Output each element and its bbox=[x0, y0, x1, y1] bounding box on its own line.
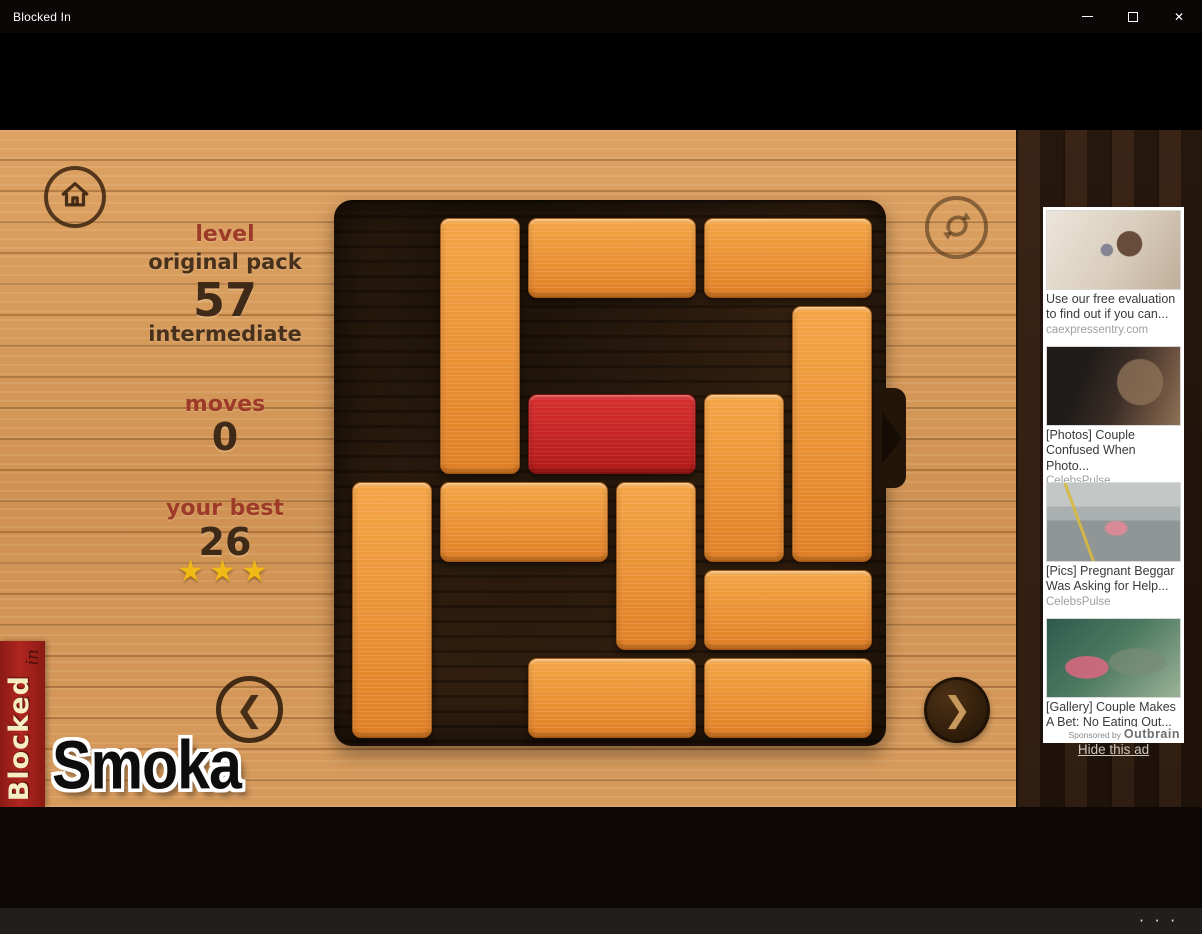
blocked-in-banner: Blocked in bbox=[0, 641, 45, 807]
ad-image bbox=[1046, 346, 1181, 426]
sponsored-label: Sponsored by bbox=[1068, 730, 1120, 740]
banner-subtitle: in bbox=[23, 649, 43, 665]
ad-image bbox=[1046, 618, 1181, 698]
ad-title[interactable]: [Pics] Pregnant Beggar Was Asking for He… bbox=[1046, 564, 1181, 595]
chevron-left-icon: ❮ bbox=[235, 690, 264, 730]
ad-card[interactable]: [Pics] Pregnant Beggar Was Asking for He… bbox=[1043, 482, 1184, 615]
orange-block[interactable] bbox=[792, 306, 872, 562]
bottom-app-bar: · · · bbox=[0, 908, 1202, 934]
orange-block[interactable] bbox=[616, 482, 696, 650]
orange-block[interactable] bbox=[704, 570, 872, 650]
sponsored-by-row[interactable]: Sponsored by Outbrain bbox=[1043, 727, 1184, 743]
app-window: Blocked In ✕ bbox=[0, 0, 1202, 934]
orange-block[interactable] bbox=[704, 218, 872, 298]
close-icon: ✕ bbox=[1174, 10, 1184, 24]
window-title: Blocked In bbox=[0, 10, 71, 24]
orange-block[interactable] bbox=[440, 218, 520, 474]
maximize-button[interactable] bbox=[1110, 0, 1156, 33]
difficulty-label: intermediate bbox=[110, 322, 340, 346]
best-label: your best bbox=[110, 496, 340, 521]
ad-title[interactable]: [Photos] Couple Confused When Photo... bbox=[1046, 428, 1181, 474]
ad-source: CelebsPulse bbox=[1046, 596, 1181, 608]
close-button[interactable]: ✕ bbox=[1156, 0, 1202, 33]
pack-name: original pack bbox=[110, 250, 340, 274]
smoka-watermark: Smoka bbox=[52, 726, 241, 805]
exit-arrow-icon bbox=[882, 412, 902, 464]
moves-label: moves bbox=[110, 392, 340, 417]
ad-title[interactable]: [Gallery] Couple Makes A Bet: No Eating … bbox=[1046, 700, 1181, 731]
ad-card[interactable]: Use our free evaluation to find out if y… bbox=[1043, 210, 1184, 343]
ad-image bbox=[1046, 210, 1181, 290]
orange-block[interactable] bbox=[528, 658, 696, 738]
red-block[interactable] bbox=[528, 394, 696, 474]
restart-icon bbox=[938, 207, 976, 249]
title-bar: Blocked In ✕ bbox=[0, 0, 1202, 33]
orange-block[interactable] bbox=[440, 482, 608, 562]
banner-title: Blocked bbox=[4, 675, 35, 801]
level-number: 57 bbox=[110, 273, 340, 327]
ad-title[interactable]: Use our free evaluation to find out if y… bbox=[1046, 292, 1181, 323]
restart-button[interactable] bbox=[925, 196, 988, 259]
orange-block[interactable] bbox=[704, 658, 872, 738]
home-icon bbox=[58, 178, 92, 216]
home-button[interactable] bbox=[44, 166, 106, 228]
next-level-button[interactable]: ❯ bbox=[924, 677, 990, 743]
minimize-button[interactable] bbox=[1064, 0, 1110, 33]
puzzle-board bbox=[334, 200, 886, 746]
best-stars: ★★★ bbox=[110, 554, 340, 589]
ad-panel: Use our free evaluation to find out if y… bbox=[1043, 207, 1184, 741]
orange-block[interactable] bbox=[528, 218, 696, 298]
minimize-icon bbox=[1082, 16, 1093, 17]
ad-source: caexpressentry.com bbox=[1046, 324, 1181, 336]
ad-card[interactable]: [Photos] Couple Confused When Photo... C… bbox=[1043, 346, 1184, 479]
orange-block[interactable] bbox=[704, 394, 784, 562]
chevron-right-icon: ❯ bbox=[943, 690, 972, 730]
ad-sidebar: Use our free evaluation to find out if y… bbox=[1016, 130, 1202, 807]
hide-ad-link[interactable]: Hide this ad bbox=[1043, 742, 1184, 757]
game-area: level original pack 57 intermediate move… bbox=[0, 130, 1016, 807]
moves-value: 0 bbox=[110, 415, 340, 459]
ad-image bbox=[1046, 482, 1181, 562]
level-label: level bbox=[110, 222, 340, 247]
orange-block[interactable] bbox=[352, 482, 432, 738]
more-options-icon[interactable]: · · · bbox=[1139, 912, 1178, 930]
maximize-icon bbox=[1128, 12, 1138, 22]
window-controls: ✕ bbox=[1064, 0, 1202, 33]
outbrain-logo: Outbrain bbox=[1124, 727, 1180, 741]
lower-letterbox bbox=[0, 807, 1202, 908]
board-grid bbox=[348, 214, 876, 742]
